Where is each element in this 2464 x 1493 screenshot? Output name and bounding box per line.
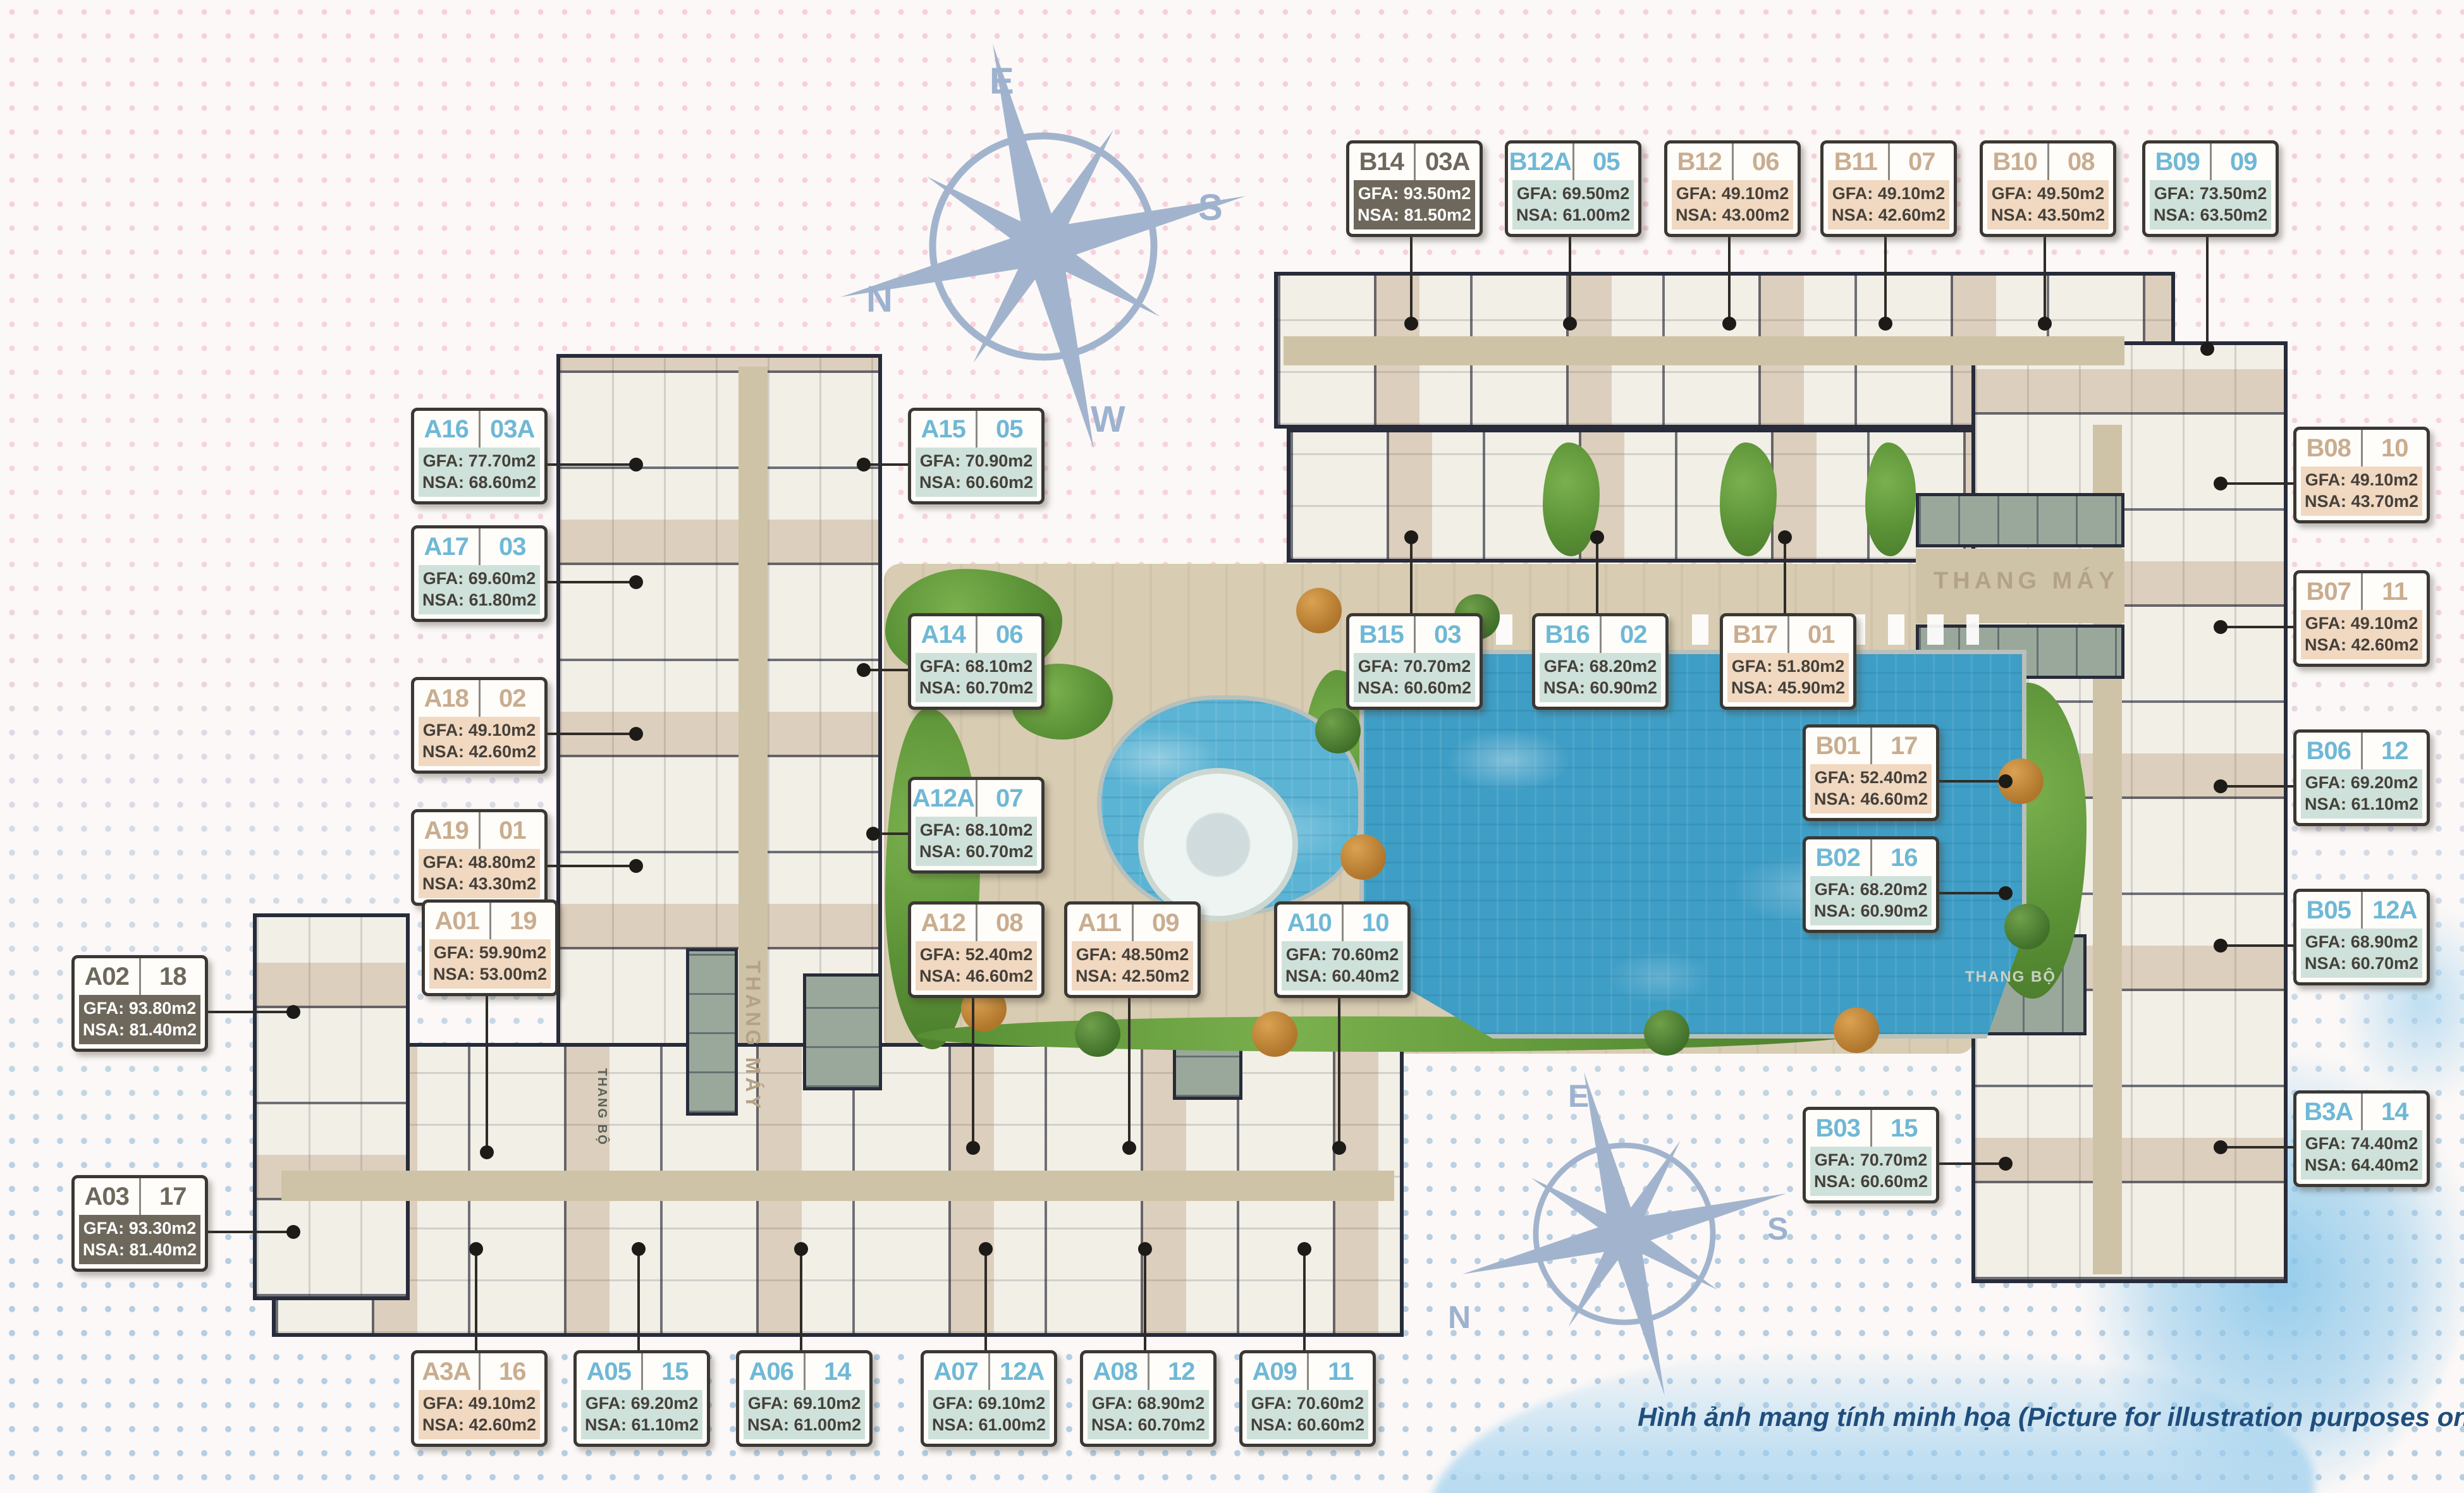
unit-area-band: GFA: 93.80m2NSA: 81.40m2: [79, 995, 200, 1044]
leader-line-a06: [800, 1249, 802, 1350]
leader-line-a01: [486, 994, 488, 1152]
unit-code: A06: [739, 1358, 804, 1386]
unit-flat-number: 03: [481, 533, 545, 561]
unit-card-a08[interactable]: A0812GFA: 68.90m2NSA: 60.70m2: [1080, 1350, 1217, 1447]
unit-card-header: A1010: [1277, 905, 1407, 941]
unit-card-b08[interactable]: B0810GFA: 49.10m2NSA: 43.70m2: [2293, 427, 2430, 523]
unit-card-a14[interactable]: A1406GFA: 68.10m2NSA: 60.70m2: [908, 613, 1045, 710]
unit-card-a16[interactable]: A1603AGFA: 77.70m2NSA: 68.60m2: [411, 408, 548, 504]
unit-card-header: A1109: [1067, 905, 1198, 941]
unit-gfa: GFA: 68.20m2: [1541, 655, 1660, 677]
unit-code: A11: [1067, 909, 1132, 937]
unit-gfa: GFA: 49.10m2: [2302, 469, 2421, 491]
unit-card-header: B3A14: [2296, 1094, 2427, 1130]
leader-dot-b01: [1999, 774, 2013, 788]
unit-nsa: NSA: 81.40m2: [80, 1019, 199, 1040]
unit-nsa: NSA: 60.70m2: [2302, 953, 2421, 974]
unit-area-band: GFA: 49.10m2NSA: 42.60m2: [2301, 610, 2422, 659]
unit-nsa: NSA: 60.90m2: [1811, 900, 1930, 922]
elevator-core: [686, 948, 738, 1116]
unit-nsa: NSA: 61.10m2: [2302, 793, 2421, 815]
leader-dot-a02: [286, 1005, 300, 1019]
unit-card-b12a[interactable]: B12A05GFA: 69.50m2NSA: 61.00m2: [1505, 140, 1641, 237]
unit-area-band: GFA: 68.20m2NSA: 60.90m2: [1810, 876, 1932, 925]
unit-gfa: GFA: 70.90m2: [917, 450, 1036, 472]
leader-line-b15: [1410, 537, 1413, 613]
leader-line-a18: [541, 733, 636, 735]
leader-dot-a11: [1122, 1141, 1136, 1155]
leader-line-b09: [2206, 235, 2209, 349]
unit-code: A01: [425, 907, 489, 935]
leader-line-a17: [541, 581, 636, 583]
unit-flat-number: 02: [481, 685, 545, 713]
unit-gfa: GFA: 49.10m2: [2302, 612, 2421, 634]
unit-card-header: B1602: [1535, 616, 1665, 653]
leader-dot-a15: [857, 458, 871, 472]
unit-code: A14: [911, 621, 976, 649]
unit-flat-number: 03A: [1416, 148, 1480, 176]
unit-card-a17[interactable]: A1703GFA: 69.60m2NSA: 61.80m2: [411, 525, 548, 622]
unit-gfa: GFA: 77.70m2: [420, 450, 539, 472]
unit-card-header: A1208: [911, 905, 1041, 941]
unit-flat-number: 19: [491, 907, 556, 935]
unit-code: A12: [911, 909, 976, 937]
leader-dot-b10: [2038, 317, 2052, 331]
compass-rose-top: [822, 25, 1265, 468]
unit-card-b14[interactable]: B1403AGFA: 93.50m2NSA: 81.50m2: [1346, 140, 1483, 237]
unit-card-header: B0512A: [2296, 892, 2427, 929]
unit-card-b06[interactable]: B0612GFA: 69.20m2NSA: 61.10m2: [2293, 729, 2430, 826]
unit-nsa: NSA: 42.60m2: [420, 1414, 539, 1435]
site-floor-plan: THANG MÁY THANG BỘ THANG MÁY THANG BỘ: [0, 0, 2464, 1493]
unit-card-header: A0119: [425, 903, 555, 939]
leader-line-a3a: [475, 1249, 477, 1350]
unit-nsa: NSA: 61.00m2: [1514, 204, 1633, 226]
unit-area-band: GFA: 49.10m2NSA: 42.60m2: [419, 1390, 540, 1439]
unit-area-band: GFA: 69.20m2NSA: 61.10m2: [581, 1390, 702, 1439]
unit-area-band: GFA: 48.50m2NSA: 42.50m2: [1072, 941, 1193, 990]
tree: [2004, 904, 2050, 949]
unit-card-a11[interactable]: A1109GFA: 48.50m2NSA: 42.50m2: [1064, 901, 1201, 998]
unit-flat-number: 02: [1602, 621, 1666, 649]
stairs-label-vertical: THANG BỘ: [594, 1068, 609, 1146]
unit-flat-number: 01: [481, 817, 545, 845]
illustration-caption: Hình ảnh mang tính minh họa (Picture for…: [1638, 1402, 2464, 1432]
stairs-label: THANG BỘ: [1965, 968, 2056, 986]
leader-dot-b12: [1722, 317, 1736, 331]
unit-area-band: GFA: 73.50m2NSA: 63.50m2: [2150, 180, 2271, 229]
leader-dot-a07: [979, 1242, 993, 1256]
unit-card-b05[interactable]: B0512AGFA: 68.90m2NSA: 60.70m2: [2293, 889, 2430, 985]
unit-flat-number: 14: [806, 1358, 870, 1386]
unit-code: B01: [1806, 732, 1870, 760]
unit-card-b09[interactable]: B0909GFA: 73.50m2NSA: 63.50m2: [2142, 140, 2279, 237]
unit-gfa: GFA: 70.70m2: [1355, 655, 1474, 677]
unit-flat-number: 03: [1416, 621, 1480, 649]
unit-area-band: GFA: 68.90m2NSA: 60.70m2: [1088, 1390, 1209, 1439]
unit-nsa: NSA: 43.50m2: [1989, 204, 2107, 226]
unit-code: B03: [1806, 1114, 1870, 1143]
unit-flat-number: 07: [978, 784, 1042, 813]
unit-card-a06[interactable]: A0614GFA: 69.10m2NSA: 61.00m2: [736, 1350, 873, 1447]
unit-nsa: NSA: 42.60m2: [420, 741, 539, 762]
unit-card-header: A12A07: [911, 780, 1041, 817]
leader-dot-a3a: [469, 1242, 483, 1256]
unit-gfa: GFA: 49.50m2: [1989, 183, 2107, 204]
unit-flat-number: 17: [1872, 732, 1937, 760]
tree: [1252, 1011, 1297, 1057]
unit-area-band: GFA: 70.90m2NSA: 60.60m2: [916, 448, 1037, 497]
unit-card-a07[interactable]: A0712AGFA: 69.10m2NSA: 61.00m2: [921, 1350, 1057, 1447]
unit-card-header: B1206: [1667, 143, 1798, 180]
unit-flat-number: 01: [1789, 621, 1854, 649]
leader-line-a07: [984, 1249, 987, 1350]
unit-code: B14: [1349, 148, 1414, 176]
unit-nsa: NSA: 64.40m2: [2302, 1154, 2421, 1176]
leader-line-b17: [1784, 537, 1786, 613]
leader-line-a02: [202, 1011, 293, 1013]
unit-nsa: NSA: 60.90m2: [1541, 677, 1660, 698]
unit-area-band: GFA: 70.60m2NSA: 60.40m2: [1282, 941, 1403, 990]
leader-line-b06: [2221, 785, 2293, 788]
unit-code: B11: [1823, 148, 1888, 176]
leader-line-b07: [2221, 626, 2293, 628]
leader-line-b08: [2221, 482, 2293, 485]
compass-letter-east: E: [990, 60, 1014, 102]
unit-nsa: NSA: 43.00m2: [1673, 204, 1792, 226]
unit-nsa: NSA: 61.80m2: [420, 589, 539, 611]
leader-line-a19: [541, 865, 636, 867]
leader-dot-a01: [480, 1145, 494, 1159]
unit-area-band: GFA: 49.10m2NSA: 43.70m2: [2301, 466, 2422, 516]
unit-area-band: GFA: 52.40m2NSA: 46.60m2: [916, 941, 1037, 990]
leader-dot-b03: [1999, 1157, 2013, 1171]
compass-letter-west: W: [1091, 398, 1125, 441]
unit-card-header: A0911: [1242, 1353, 1373, 1390]
unit-code: A03: [75, 1183, 139, 1211]
leader-line-b3a: [2221, 1146, 2293, 1149]
leader-line-b03: [1933, 1162, 2006, 1165]
unit-card-b15[interactable]: B1503GFA: 70.70m2NSA: 60.60m2: [1346, 613, 1483, 710]
unit-card-a19[interactable]: A1901GFA: 48.80m2NSA: 43.30m2: [411, 809, 548, 906]
unit-flat-number: 12: [1149, 1358, 1214, 1386]
leader-dot-a10: [1332, 1141, 1346, 1155]
unit-nsa: NSA: 43.30m2: [420, 873, 539, 894]
unit-gfa: GFA: 59.90m2: [431, 942, 549, 963]
unit-card-a12[interactable]: A1208GFA: 52.40m2NSA: 46.60m2: [908, 901, 1045, 998]
unit-code: A12A: [911, 784, 976, 813]
unit-card-header: B12A05: [1508, 143, 1638, 180]
unit-code: B10: [1983, 148, 2047, 176]
leader-line-b12: [1728, 235, 1731, 324]
unit-code: B15: [1349, 621, 1414, 649]
unit-nsa: NSA: 42.60m2: [1829, 204, 1948, 226]
tree: [1075, 1011, 1120, 1057]
leader-dot-b17: [1778, 530, 1792, 544]
leader-dot-b06: [2214, 779, 2228, 793]
compass-letter-east: E: [1568, 1078, 1589, 1114]
unit-flat-number: 08: [978, 909, 1042, 937]
building-wing-a-left-protrusion: [253, 913, 410, 1300]
unit-gfa: GFA: 69.20m2: [2302, 772, 2421, 793]
unit-card-a03[interactable]: A0317GFA: 93.30m2NSA: 81.40m2: [71, 1175, 208, 1272]
stair-core: [803, 973, 882, 1090]
unit-gfa: GFA: 70.60m2: [1283, 944, 1402, 965]
unit-card-header: B0216: [1806, 839, 1936, 876]
corridor: [739, 367, 768, 1043]
unit-flat-number: 10: [1344, 909, 1408, 937]
leader-dot-a05: [632, 1242, 646, 1256]
unit-code: B3A: [2296, 1098, 2361, 1126]
unit-gfa: GFA: 68.90m2: [1089, 1392, 1208, 1414]
leader-dot-b16: [1590, 530, 1604, 544]
unit-gfa: GFA: 69.10m2: [929, 1392, 1048, 1414]
unit-code: A15: [911, 415, 976, 444]
unit-card-b17[interactable]: B1701GFA: 51.80m2NSA: 45.90m2: [1720, 613, 1856, 710]
unit-gfa: GFA: 48.50m2: [1073, 944, 1192, 965]
unit-nsa: NSA: 68.60m2: [420, 472, 539, 493]
unit-gfa: GFA: 68.90m2: [2302, 931, 2421, 953]
unit-card-header: A0614: [739, 1353, 869, 1390]
leader-dot-b15: [1404, 530, 1418, 544]
leader-dot-b02: [1999, 886, 2013, 900]
unit-nsa: NSA: 60.60m2: [917, 472, 1036, 493]
unit-nsa: NSA: 60.60m2: [1248, 1414, 1367, 1435]
unit-code: B02: [1806, 844, 1870, 872]
unit-gfa: GFA: 51.80m2: [1729, 655, 1848, 677]
unit-gfa: GFA: 52.40m2: [917, 944, 1036, 965]
unit-nsa: NSA: 81.40m2: [80, 1239, 199, 1260]
unit-flat-number: 17: [141, 1183, 205, 1211]
unit-card-header: A1505: [911, 411, 1041, 448]
unit-card-header: A1703: [414, 528, 544, 565]
unit-code: B12: [1667, 148, 1732, 176]
unit-flat-number: 10: [2363, 434, 2427, 463]
tree: [1315, 708, 1361, 753]
tree: [1296, 588, 1342, 633]
tree: [1834, 1008, 1879, 1053]
unit-gfa: GFA: 48.80m2: [420, 851, 539, 873]
leader-dot-a12a: [866, 827, 880, 841]
tree: [1340, 834, 1386, 880]
unit-card-header: A3A16: [414, 1353, 544, 1390]
leader-dot-b08: [2214, 477, 2228, 491]
unit-card-a10[interactable]: A1010GFA: 70.60m2NSA: 60.40m2: [1274, 901, 1411, 998]
unit-flat-number: 09: [1134, 909, 1198, 937]
unit-gfa: GFA: 69.50m2: [1514, 183, 1633, 204]
unit-code: A10: [1277, 909, 1342, 937]
unit-flat-number: 15: [643, 1358, 708, 1386]
unit-card-b01[interactable]: B0117GFA: 52.40m2NSA: 46.60m2: [1803, 724, 1939, 821]
unit-nsa: NSA: 60.40m2: [1283, 965, 1402, 987]
unit-code: A05: [577, 1358, 641, 1386]
unit-area-band: GFA: 68.20m2NSA: 60.90m2: [1540, 653, 1661, 702]
unit-card-header: A0812: [1083, 1353, 1213, 1390]
unit-gfa: GFA: 93.30m2: [80, 1217, 199, 1239]
unit-card-a02[interactable]: A0218GFA: 93.80m2NSA: 81.40m2: [71, 955, 208, 1052]
unit-code: B17: [1723, 621, 1787, 649]
unit-flat-number: 18: [141, 963, 205, 991]
elevator-label: THANG MÁY: [1934, 568, 2119, 595]
unit-card-header: B0315: [1806, 1110, 1936, 1147]
unit-nsa: NSA: 45.90m2: [1729, 677, 1848, 698]
unit-card-header: B1107: [1823, 143, 1954, 180]
leader-dot-b05: [2214, 939, 2228, 953]
unit-code: A08: [1083, 1358, 1148, 1386]
unit-gfa: GFA: 70.60m2: [1248, 1392, 1367, 1414]
unit-card-header: A0712A: [924, 1353, 1054, 1390]
unit-area-band: GFA: 74.40m2NSA: 64.40m2: [2301, 1130, 2422, 1179]
unit-card-header: A1603A: [414, 411, 544, 448]
unit-nsa: NSA: 46.60m2: [1811, 788, 1930, 810]
unit-nsa: NSA: 60.60m2: [1355, 677, 1474, 698]
unit-flat-number: 06: [1734, 148, 1798, 176]
unit-nsa: NSA: 53.00m2: [431, 963, 549, 985]
unit-flat-number: 06: [978, 621, 1042, 649]
leader-dot-a03: [286, 1225, 300, 1239]
unit-nsa: NSA: 61.10m2: [582, 1414, 701, 1435]
corridor: [1284, 336, 2124, 365]
unit-gfa: GFA: 70.70m2: [1811, 1149, 1930, 1171]
unit-area-band: GFA: 49.10m2NSA: 43.00m2: [1672, 180, 1793, 229]
unit-card-b11[interactable]: B1107GFA: 49.10m2NSA: 42.60m2: [1820, 140, 1957, 237]
unit-card-b12[interactable]: B1206GFA: 49.10m2NSA: 43.00m2: [1664, 140, 1801, 237]
compass-letter-south: S: [1767, 1210, 1788, 1247]
leader-line-b05: [2221, 944, 2293, 947]
unit-card-header: B0612: [2296, 733, 2427, 769]
unit-card-header: A0317: [75, 1178, 205, 1215]
unit-card-a15[interactable]: A1505GFA: 70.90m2NSA: 60.60m2: [908, 408, 1045, 504]
leader-line-a05: [637, 1249, 640, 1350]
elevator-bank: [1916, 493, 2124, 547]
unit-card-header: B0117: [1806, 728, 1936, 764]
unit-card-a12a[interactable]: A12A07GFA: 68.10m2NSA: 60.70m2: [908, 777, 1045, 874]
unit-code: B05: [2296, 896, 2361, 925]
leader-dot-a09: [1297, 1242, 1311, 1256]
leader-dot-a06: [794, 1242, 808, 1256]
unit-card-header: B1701: [1723, 616, 1853, 653]
unit-nsa: NSA: 60.70m2: [1089, 1414, 1208, 1435]
unit-area-band: GFA: 48.80m2NSA: 43.30m2: [419, 849, 540, 898]
unit-card-header: A1901: [414, 812, 544, 849]
unit-card-a09[interactable]: A0911GFA: 70.60m2NSA: 60.60m2: [1239, 1350, 1376, 1447]
unit-gfa: GFA: 93.50m2: [1355, 183, 1474, 204]
pool-island-feature: [1138, 768, 1298, 922]
unit-code: A3A: [414, 1358, 479, 1386]
unit-nsa: NSA: 81.50m2: [1355, 204, 1474, 226]
unit-nsa: NSA: 42.60m2: [2302, 634, 2421, 655]
unit-area-band: GFA: 77.70m2NSA: 68.60m2: [419, 448, 540, 497]
unit-gfa: GFA: 69.10m2: [745, 1392, 864, 1414]
leader-line-b16: [1596, 537, 1598, 613]
unit-flat-number: 05: [978, 415, 1042, 444]
leader-line-a11: [1128, 996, 1131, 1148]
leader-line-b12a: [1569, 235, 1571, 324]
unit-flat-number: 07: [1890, 148, 1954, 176]
unit-card-header: A1406: [911, 616, 1041, 653]
unit-gfa: GFA: 52.40m2: [1811, 767, 1930, 788]
unit-area-band: GFA: 49.50m2NSA: 43.50m2: [1987, 180, 2109, 229]
unit-area-band: GFA: 69.50m2NSA: 61.00m2: [1512, 180, 1634, 229]
unit-card-a05[interactable]: A0515GFA: 69.20m2NSA: 61.10m2: [573, 1350, 710, 1447]
unit-code: A07: [924, 1358, 988, 1386]
unit-card-header: A0515: [577, 1353, 707, 1390]
unit-nsa: NSA: 60.60m2: [1811, 1171, 1930, 1192]
unit-card-b03[interactable]: B0315GFA: 70.70m2NSA: 60.60m2: [1803, 1107, 1939, 1204]
leader-line-a09: [1303, 1249, 1306, 1350]
unit-area-band: GFA: 70.70m2NSA: 60.60m2: [1810, 1147, 1932, 1196]
unit-flat-number: 15: [1872, 1114, 1937, 1143]
unit-nsa: NSA: 63.50m2: [2151, 204, 2270, 226]
compass-letter-north: N: [866, 278, 893, 320]
unit-code: A09: [1242, 1358, 1307, 1386]
unit-card-header: B1503: [1349, 616, 1480, 653]
unit-area-band: GFA: 49.10m2NSA: 42.60m2: [419, 717, 540, 766]
unit-area-band: GFA: 93.30m2NSA: 81.40m2: [79, 1215, 200, 1264]
leader-dot-b11: [1879, 317, 1892, 331]
unit-card-header: B0909: [2145, 143, 2276, 180]
leader-line-b02: [1933, 892, 2006, 894]
leader-line-b11: [1884, 235, 1887, 324]
leader-dot-b3a: [2214, 1140, 2228, 1154]
unit-nsa: NSA: 46.60m2: [917, 965, 1036, 987]
unit-card-a18[interactable]: A1802GFA: 49.10m2NSA: 42.60m2: [411, 677, 548, 774]
unit-gfa: GFA: 49.10m2: [420, 1392, 539, 1414]
unit-code: B07: [2296, 578, 2361, 606]
unit-area-band: GFA: 70.70m2NSA: 60.60m2: [1354, 653, 1475, 702]
unit-code: B16: [1535, 621, 1600, 649]
unit-card-b3a[interactable]: B3A14GFA: 74.40m2NSA: 64.40m2: [2293, 1090, 2430, 1187]
leader-line-a08: [1144, 1249, 1146, 1350]
unit-gfa: GFA: 69.20m2: [582, 1392, 701, 1414]
leader-dot-a19: [629, 859, 643, 873]
unit-gfa: GFA: 93.80m2: [80, 997, 199, 1019]
unit-area-band: GFA: 69.20m2NSA: 61.10m2: [2301, 769, 2422, 819]
unit-nsa: NSA: 60.70m2: [917, 677, 1036, 698]
unit-card-b07[interactable]: B0711GFA: 49.10m2NSA: 42.60m2: [2293, 570, 2430, 667]
unit-nsa: NSA: 61.00m2: [745, 1414, 864, 1435]
unit-nsa: NSA: 60.70m2: [917, 841, 1036, 862]
unit-card-b10[interactable]: B1008GFA: 49.50m2NSA: 43.50m2: [1980, 140, 2116, 237]
unit-code: A16: [414, 415, 479, 444]
unit-card-header: A1802: [414, 680, 544, 717]
unit-area-band: GFA: 69.60m2NSA: 61.80m2: [419, 565, 540, 614]
leader-line-a12: [972, 996, 974, 1148]
unit-gfa: GFA: 68.10m2: [917, 655, 1036, 677]
unit-card-b02[interactable]: B0216GFA: 68.20m2NSA: 60.90m2: [1803, 836, 1939, 933]
unit-gfa: GFA: 49.10m2: [420, 719, 539, 741]
unit-flat-number: 16: [481, 1358, 545, 1386]
unit-card-header: B0810: [2296, 430, 2427, 466]
leader-line-a03: [202, 1231, 293, 1233]
compass-letter-north: N: [1448, 1299, 1471, 1336]
unit-gfa: GFA: 73.50m2: [2151, 183, 2270, 204]
unit-card-b16[interactable]: B1602GFA: 68.20m2NSA: 60.90m2: [1532, 613, 1669, 710]
unit-area-band: GFA: 93.50m2NSA: 81.50m2: [1354, 180, 1475, 229]
unit-card-a3a[interactable]: A3A16GFA: 49.10m2NSA: 42.60m2: [411, 1350, 548, 1447]
unit-code: B06: [2296, 737, 2361, 765]
unit-card-a01[interactable]: A0119GFA: 59.90m2NSA: 53.00m2: [422, 899, 558, 996]
unit-gfa: GFA: 68.20m2: [1811, 879, 1930, 900]
elevator-label-vertical: THANG MÁY: [741, 961, 764, 1112]
unit-gfa: GFA: 68.10m2: [917, 819, 1036, 841]
unit-code: A17: [414, 533, 479, 561]
unit-flat-number: 12A: [2363, 896, 2427, 925]
compass-letter-south: S: [1198, 186, 1223, 229]
unit-flat-number: 03A: [481, 415, 545, 444]
unit-area-band: GFA: 52.40m2NSA: 46.60m2: [1810, 764, 1932, 814]
unit-area-band: GFA: 69.10m2NSA: 61.00m2: [928, 1390, 1050, 1439]
